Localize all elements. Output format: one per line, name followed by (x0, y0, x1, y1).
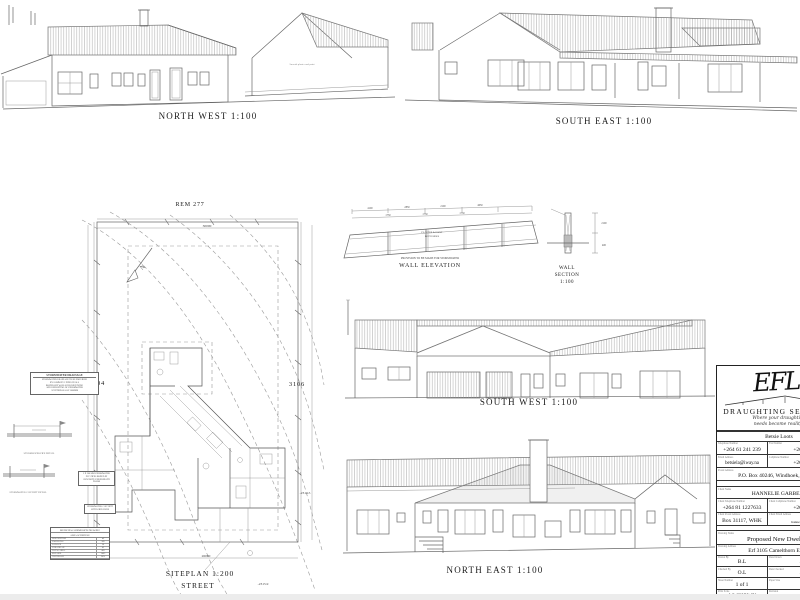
client-cell-cell: Client Cellphone Number +264 81 1 (767, 499, 800, 511)
wall-bottom-note: PROVISION TO BE MADE FOR STORMWATER (401, 257, 459, 260)
caption-south-west: SOUTH WEST 1:100 (480, 397, 578, 407)
wall-dim: 4050 (477, 204, 482, 207)
cellphone-cell: Cellphone Number +264 81 2 (767, 455, 800, 467)
checked-by-cell: Checked By O.L (717, 567, 767, 577)
sw-openings (362, 367, 680, 398)
dim-top: 30000 (203, 224, 212, 228)
svg-text:N: N (139, 264, 147, 272)
ne-openings (357, 509, 705, 537)
drawing-name-cell: Drawing Name Proposed New Dwelling (717, 531, 800, 543)
drawing-address-cell: Drawing Address Erf 3105 Camelthorn Esta… (717, 545, 800, 555)
pipes-note: 2 X 200 MM STORMWATER PVC PIPES BOXED IN… (78, 471, 115, 486)
wall-dim: 2100 (440, 205, 445, 208)
caption-south-east: SOUTH EAST 1:100 (556, 116, 653, 126)
section-dim-height: 2100 (601, 222, 606, 225)
client-tel-cell: Client Telephone Number +264 81 1227633 (717, 499, 767, 511)
wall-dim: 1750 (422, 213, 427, 216)
nw-windows (58, 68, 209, 100)
postal-cell: Postal Address P.O. Box 40246, Windhoek,… (717, 468, 800, 480)
section-dim-base: 400 (602, 244, 606, 247)
sheet-number-cell: Sheet Number 1 of 1 (717, 578, 767, 588)
wall-elevation-drawing (340, 205, 570, 265)
date-checked-cell: Date Checked 30/5 (767, 567, 800, 577)
client-postal-cell: Client Postal Address Box 31117, WHK (717, 513, 767, 525)
title-block: EFL. DRAUGHTING SERVICES Where your drau… (716, 365, 800, 600)
dim-bottom: 26000 (202, 554, 211, 558)
drawn-by-cell: Drawn By B.L (717, 556, 767, 566)
wall-panel-note: BOTH SIDES (425, 235, 439, 238)
floor-plan (115, 342, 285, 520)
tagline: needs become reality! (717, 422, 800, 428)
entrance-steps (415, 535, 680, 553)
level-b: -2315.9 (258, 582, 269, 586)
caption-pipe-detail: STORMWATER PIPE DETAIL (24, 453, 55, 456)
wall-dim: 2850 (404, 206, 409, 209)
date-drawn-cell: Date Drawn 30/5 (767, 556, 800, 566)
north-arrow: N (127, 248, 152, 282)
label-erf-3106: 3106 (289, 381, 305, 388)
caption-north-east: NORTH EAST 1:100 (447, 565, 544, 575)
drawing-sheet: Smooth plaster and paint NORTH WEST 1:10… (0, 0, 800, 600)
se-openings (518, 62, 760, 102)
contact-name: Betsie Loots (717, 432, 800, 441)
company-logo: EFL. DRAUGHTING SERVICES Where your drau… (717, 366, 800, 431)
wall-dim: 1750 (459, 212, 464, 215)
boundary-pegs (94, 219, 301, 545)
catchpit-note: STORMWATER CATCHPIT WITH GRID OVER (84, 504, 116, 514)
sheet-edge (0, 594, 800, 600)
paper-size-cell: Paper Size A1 (767, 578, 800, 588)
caption-wall-section-2: SECTION (555, 273, 580, 278)
siteplan-drawing: N (80, 190, 325, 600)
table-row: COVERAGE34% (51, 556, 109, 559)
wall-panel-note: PLASTER & PAINT (421, 231, 442, 234)
caption-north-west: NORTH WEST 1:100 (159, 111, 258, 121)
elevation-north-east (335, 425, 725, 575)
caption-catchpit-detail: STORMWATER CATCHPIT DETAIL (9, 492, 46, 495)
elevation-south-east (400, 0, 800, 130)
logo-text: EFL. (716, 366, 800, 397)
client-name-cell: Client Name HANNELIE GARBERS (717, 487, 800, 498)
nw-finish-note: Smooth plaster and paint (290, 63, 315, 66)
caption-wall-section-1: WALL (559, 266, 575, 271)
caption-siteplan: SITEPLAN 1:200 (166, 569, 234, 578)
wall-section-drawing (545, 205, 615, 267)
company-name: DRAUGHTING SERVICES (717, 407, 800, 416)
caption-wall-section-3: 1:100 (560, 280, 574, 285)
elevation-north-west (0, 0, 400, 125)
fax-cell: Fax Number +264 61 2 (767, 442, 800, 454)
area-schedule-table: MUNICIPAL SUBMISSION DRAWING AREA SCHEDU… (50, 527, 110, 560)
client-email-cell: Client Email Address hannelie.garbers@ (767, 513, 800, 525)
caption-wall-elevation: WALL ELEVATION (399, 263, 461, 269)
wall-dim: 1750 (385, 214, 390, 217)
stormwater-note: STORMWATER DRAINAGE STORMWATER DRAINAGE … (30, 372, 99, 395)
label-rem277: REM 277 (175, 202, 204, 208)
email-cell: Email Address betsiela@iway.na (717, 455, 767, 467)
level-a: -2314.5 (300, 491, 311, 495)
elevation-south-west (340, 290, 720, 410)
wall-dim: 4100 (367, 207, 372, 210)
caption-street: STREET (181, 581, 215, 590)
telephone-cell: Telephone Number +264 61 241 239 (717, 442, 767, 454)
